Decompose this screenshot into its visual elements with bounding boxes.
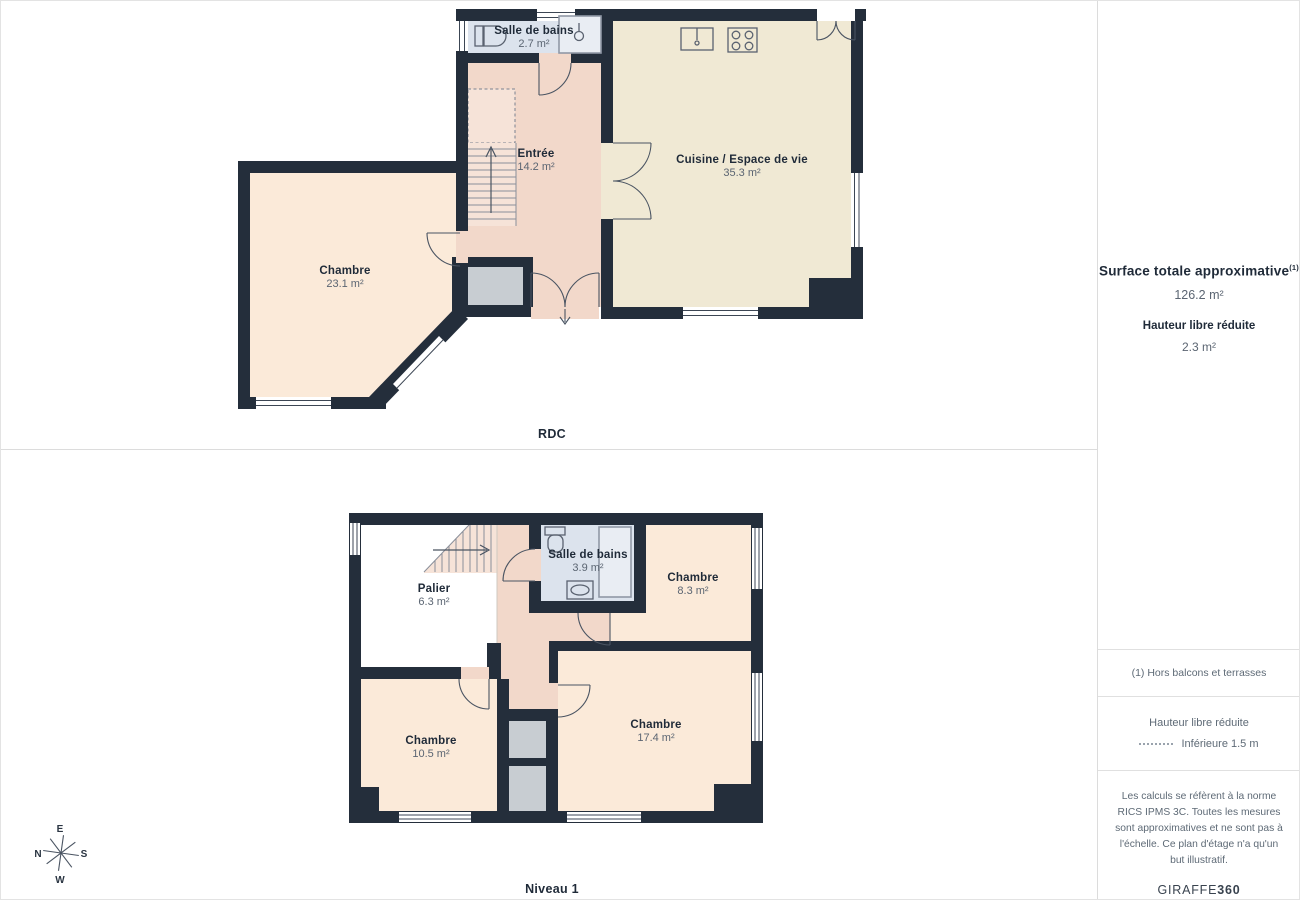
niveau1-floorplan — [341, 504, 771, 834]
rdc-floorplan — [231, 1, 876, 419]
floor-title-rdc: RDC — [538, 427, 566, 441]
surface-summary: Surface totale approximative(1) 126.2 m²… — [1098, 263, 1300, 354]
shower-icon — [599, 527, 631, 597]
legend-section: Hauteur libre réduite Inférieure 1.5 m — [1098, 697, 1300, 771]
floorplan-page: Salle de bains 2.7 m² Entrée 14.2 m² Cui… — [0, 0, 1300, 900]
disclaimer-section: Les calculs se réfèrent à la norme RICS … — [1098, 771, 1300, 897]
reduced-height-value: 2.3 m² — [1098, 340, 1300, 354]
compass-icon: E N S W — [23, 817, 99, 893]
surface-total-value: 126.2 m² — [1098, 288, 1300, 302]
legend-title: Hauteur libre réduite — [1098, 717, 1300, 729]
footnote-marker: (1) — [1289, 263, 1299, 272]
giraffe360-logo: GIRAFFE360 — [1098, 883, 1300, 897]
info-sidebar: Surface totale approximative(1) 126.2 m²… — [1097, 1, 1300, 900]
footnote-section: (1) Hors balcons et terrasses — [1098, 649, 1300, 697]
compass-south: S — [81, 849, 88, 860]
compass-north: N — [34, 849, 41, 860]
footnote-text: (1) Hors balcons et terrasses — [1132, 667, 1267, 679]
legend-value: Inférieure 1.5 m — [1181, 738, 1258, 750]
compass-east: E — [57, 824, 64, 835]
floor-title-niveau1: Niveau 1 — [525, 882, 579, 896]
floors-divider — [1, 449, 1097, 450]
dotted-line-icon — [1139, 743, 1173, 745]
n1-closets — [509, 721, 546, 811]
rdc-stairs — [468, 89, 516, 226]
disclaimer-text: Les calculs se réfèrent à la norme RICS … — [1113, 789, 1285, 869]
rdc-closet — [468, 267, 523, 305]
surface-total-title: Surface totale approximative(1) — [1098, 263, 1300, 279]
reduced-height-title: Hauteur libre réduite — [1098, 320, 1300, 332]
shower-icon — [559, 16, 601, 53]
compass-west: W — [55, 875, 65, 886]
rdc-room-fills — [250, 19, 851, 397]
